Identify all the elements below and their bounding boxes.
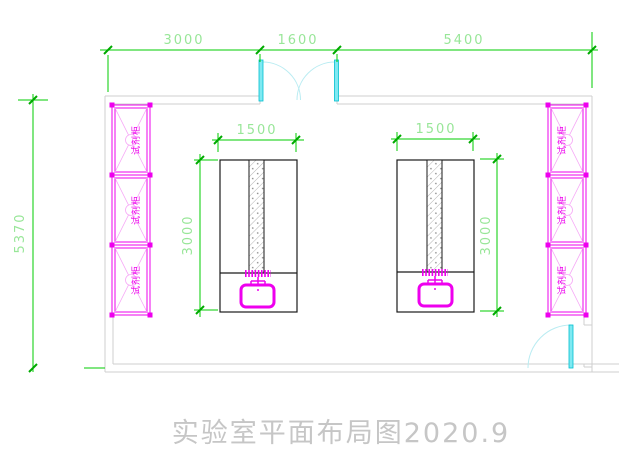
dimension-right-bench-depth: 3000	[479, 153, 504, 317]
door-swing-arc	[528, 325, 571, 368]
cabinet-cell: 试剂柜	[546, 173, 589, 248]
cabinet-label: 试剂柜	[130, 125, 142, 155]
door-swing-arc-left	[263, 62, 301, 100]
lab-bench-left	[220, 160, 297, 312]
bench-reagent-shelf	[427, 160, 442, 272]
dim-extension-lines	[194, 160, 218, 310]
dimension-left-bench-depth: 3000	[181, 154, 218, 317]
dim-label-right-bench-1500: 1500	[415, 122, 456, 137]
dimension-top-chain: 3000 1600 5400	[100, 32, 598, 92]
cabinet-column-left: 试剂柜 试剂柜 试剂柜	[110, 103, 153, 318]
cabinet-label: 试剂柜	[556, 195, 568, 225]
wall-right-jambs	[584, 325, 592, 367]
cabinet-label: 试剂柜	[556, 125, 568, 155]
floor-plan-canvas: 试剂柜 试剂柜 试剂柜 试剂柜 试剂柜 试剂柜	[0, 0, 619, 469]
dim-label-left-5370: 5370	[13, 212, 28, 253]
floor-plan-drawing: 试剂柜 试剂柜 试剂柜 试剂柜 试剂柜 试剂柜	[0, 0, 619, 469]
dim-label-right-bench-3000: 3000	[479, 214, 494, 255]
cabinet-label: 试剂柜	[130, 265, 142, 295]
dim-label-top-3000: 3000	[163, 33, 204, 48]
dimension-left-bench-width: 1500	[212, 123, 304, 152]
door-leaf	[569, 325, 573, 368]
door-leaf-left	[259, 60, 263, 101]
wall-top-jambs	[260, 96, 337, 104]
lab-bench-right	[397, 160, 474, 312]
dim-label-left-bench-1500: 1500	[236, 123, 277, 138]
cabinet-cell: 试剂柜	[110, 103, 153, 178]
door-leaf-right	[335, 60, 339, 101]
door-right-wall	[528, 325, 573, 368]
dim-label-left-bench-3000: 3000	[181, 214, 196, 255]
dimension-right-bench-width: 1500	[391, 122, 480, 151]
cabinet-cell: 试剂柜	[546, 243, 589, 318]
cabinet-column-right: 试剂柜 试剂柜 试剂柜	[546, 103, 589, 318]
door-swing-arc-right	[297, 62, 335, 100]
double-door-top	[259, 60, 339, 101]
cabinet-label: 试剂柜	[130, 195, 142, 225]
cabinet-cell: 试剂柜	[110, 173, 153, 248]
dim-label-top-1600: 1600	[277, 33, 318, 48]
dimension-left-height: 5370	[13, 94, 105, 372]
dim-extension-lines	[18, 100, 105, 368]
drawing-title: 实验室平面布局图2020.9	[172, 418, 510, 449]
cabinet-cell: 试剂柜	[546, 103, 589, 178]
cabinet-label: 试剂柜	[556, 265, 568, 295]
dim-label-top-5400: 5400	[443, 33, 484, 48]
cabinet-cell: 试剂柜	[110, 243, 153, 318]
bench-reagent-shelf	[249, 160, 264, 273]
